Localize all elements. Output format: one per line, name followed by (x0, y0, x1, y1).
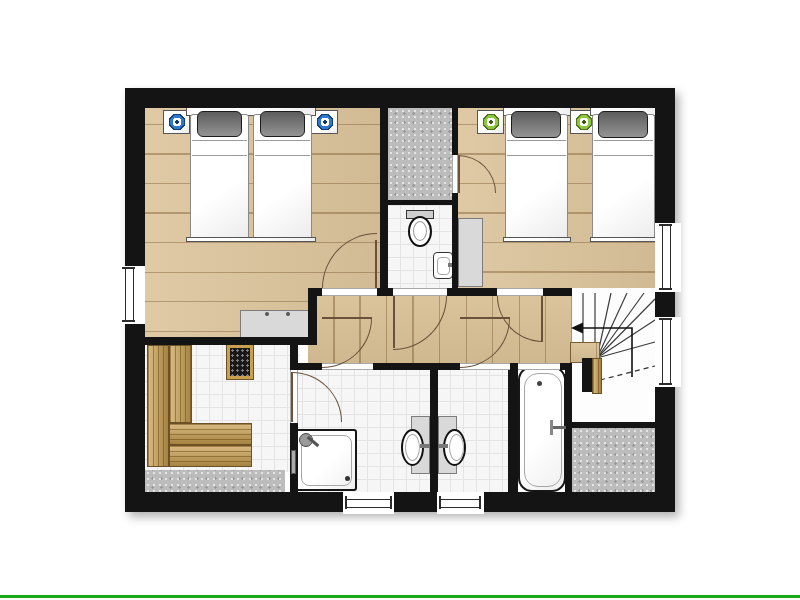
pillow (511, 111, 561, 138)
wall-bathroom-bathtub (508, 363, 518, 492)
stair-cut-dashed-line (600, 366, 655, 380)
corner-shower-tray (295, 429, 357, 491)
blue-speaker-icon (168, 113, 186, 131)
hallway-north-wall-c (447, 288, 497, 296)
double-bed-footboard (186, 237, 316, 242)
threshold-wc (393, 288, 447, 296)
pillow (598, 111, 648, 138)
wall-closet-west (380, 96, 388, 296)
faucet-right (438, 444, 448, 448)
faucet-left (420, 444, 430, 448)
blanket-fold (594, 140, 653, 156)
blanket-fold (507, 140, 566, 156)
wall-closet-east-lower (452, 193, 458, 296)
threshold-bedroom2 (497, 288, 543, 296)
wall-between-bathrooms (430, 363, 438, 492)
wardrobe-bedroom2 (458, 218, 483, 287)
window-glazing (346, 499, 391, 508)
sauna-bench-lower-top (169, 423, 252, 445)
window-cap (390, 496, 392, 509)
sauna-storage-strip (145, 470, 285, 492)
dresser-bedroom1 (240, 310, 310, 338)
window-cap (122, 320, 135, 322)
floorplan-canvas (0, 0, 800, 600)
wall-understairs-top (565, 422, 655, 428)
bathtub-faucet-stem (552, 426, 566, 429)
wall-closet-wc-divider (380, 200, 458, 205)
window-cap (659, 383, 672, 385)
blanket-fold (255, 140, 310, 156)
threshold-bedroom1 (322, 288, 377, 296)
blue-speaker-icon (316, 113, 334, 131)
closet-floor (388, 96, 452, 205)
threshold-bathtub-niche (518, 363, 560, 370)
single-bed2-footboard (590, 237, 657, 242)
sauna-bench-lower-bottom (169, 445, 252, 467)
hallway-south-wall-a (290, 363, 322, 370)
blanket-fold (192, 140, 247, 156)
pillow (197, 111, 242, 137)
dresser-knob (286, 312, 290, 316)
wc-hand-basin (433, 252, 453, 279)
bathtub-inner (524, 373, 562, 487)
wall-closet-east-upper (452, 96, 458, 155)
window-cap (439, 496, 441, 509)
green-speaker-icon (482, 113, 500, 131)
dresser-knob (265, 312, 269, 316)
sauna-heater (227, 345, 253, 379)
exterior-wall-top (125, 88, 675, 108)
window-glazing (662, 226, 671, 289)
understairs-storage-floor (572, 428, 655, 492)
hallway-south-wall-b (373, 363, 460, 370)
window-glazing (662, 320, 671, 384)
nightstand-bedroom2-left (477, 110, 504, 134)
bathtub-faucet-bar (550, 420, 553, 435)
stair-spine-trim (592, 358, 602, 394)
sauna-bench-inner (169, 345, 192, 423)
exterior-wall-bottom (125, 492, 675, 512)
hallway-north-wall-b (377, 288, 393, 296)
exterior-wall-right (655, 88, 675, 512)
window-cap (345, 496, 347, 509)
sauna-north-wall (125, 337, 317, 345)
single-bed1-footboard (503, 237, 571, 242)
window-cap (122, 267, 135, 269)
window-cap (659, 224, 672, 226)
bathtub (518, 366, 566, 492)
window-cap (659, 318, 672, 320)
shower-drain (345, 476, 350, 481)
stair-direction-arrowhead (571, 323, 583, 334)
sauna-bench-outer (147, 345, 169, 467)
shower-valve (291, 450, 296, 474)
stair-spine-wall (582, 358, 592, 392)
window-cap (479, 496, 481, 509)
bottom-divider (0, 595, 800, 598)
toilet-seat (413, 221, 427, 241)
basin-bowl (405, 434, 420, 461)
hallway-north-wall-d (543, 288, 572, 296)
window-glazing (125, 269, 134, 321)
basin-bowl (449, 434, 464, 461)
window-glazing (440, 499, 481, 508)
bathtub-drain (537, 381, 542, 386)
pillow (260, 111, 305, 137)
window-cap (659, 288, 672, 290)
